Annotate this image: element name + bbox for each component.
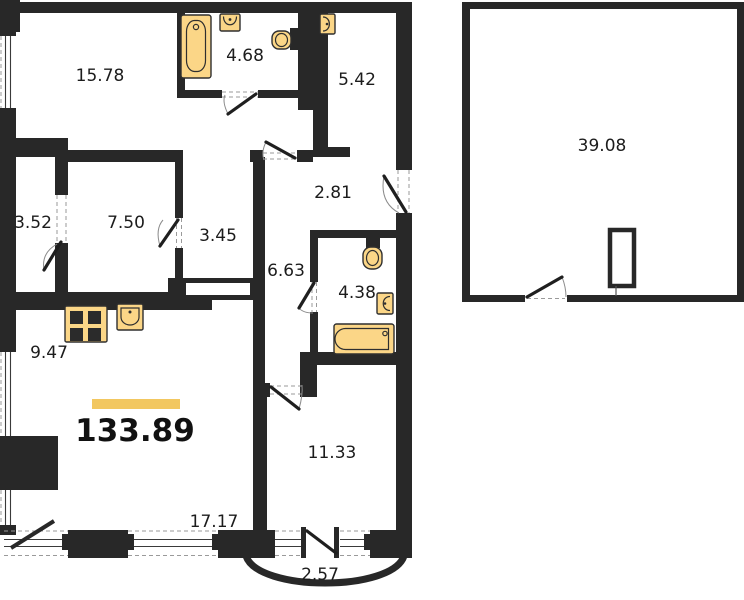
stove-icon <box>65 306 107 342</box>
area-label-hall-upper: 2.81 <box>314 183 352 203</box>
door-bathroom-top <box>222 92 258 114</box>
total-area-marker: 133.89 <box>75 399 195 449</box>
window-left-top <box>1 36 11 108</box>
sink-icon <box>117 304 143 330</box>
balcony-door-swing <box>301 527 339 558</box>
bathtub-icon <box>334 324 394 354</box>
area-label-annex-room: 39.08 <box>578 136 627 156</box>
door-bathroom-mid <box>299 282 317 313</box>
annex-door-swing <box>527 277 566 299</box>
area-label-bathroom-mid: 4.38 <box>338 283 376 303</box>
window-left-low <box>1 490 11 525</box>
door-hall-upper <box>263 142 297 160</box>
area-label-room-bottom-right: 11.33 <box>308 443 357 463</box>
bathtub-icon <box>181 15 211 78</box>
area-label-living-bottom: 17.17 <box>190 512 239 532</box>
floor-plan-svg: 15.78 4.68 5.42 3.52 7.50 3.45 2.81 6.63… <box>0 0 744 600</box>
area-label-room-top-left: 15.78 <box>76 66 125 86</box>
door-entrance <box>383 170 409 213</box>
toilet-icon <box>272 31 291 49</box>
area-label-hall-lower: 6.63 <box>267 261 305 281</box>
area-label-closet-left: 3.52 <box>14 213 52 233</box>
area-label-room-top-right: 5.42 <box>338 70 376 90</box>
area-label-bathroom-top: 4.68 <box>226 46 264 66</box>
window-left-mid <box>1 352 11 436</box>
door-room-bottom-right <box>270 385 302 409</box>
area-label-room-mid-left: 7.50 <box>107 213 145 233</box>
vent-shaft <box>168 278 262 300</box>
area-label-balcony: 2.57 <box>301 565 339 585</box>
sink-icon <box>220 14 240 31</box>
corner-mullion <box>11 521 54 548</box>
column-icon <box>610 230 634 296</box>
area-label-corridor-mid: 3.45 <box>199 226 237 246</box>
total-area-underline <box>92 399 180 409</box>
sink-icon <box>320 14 335 34</box>
floor-plan-canvas: 15.78 4.68 5.42 3.52 7.50 3.45 2.81 6.63… <box>0 0 744 600</box>
door-room-mid-left <box>158 218 181 248</box>
sink-icon <box>377 293 393 314</box>
toilet-icon <box>363 238 382 269</box>
total-area-label: 133.89 <box>75 413 195 449</box>
area-label-kitchen: 9.47 <box>30 343 68 363</box>
